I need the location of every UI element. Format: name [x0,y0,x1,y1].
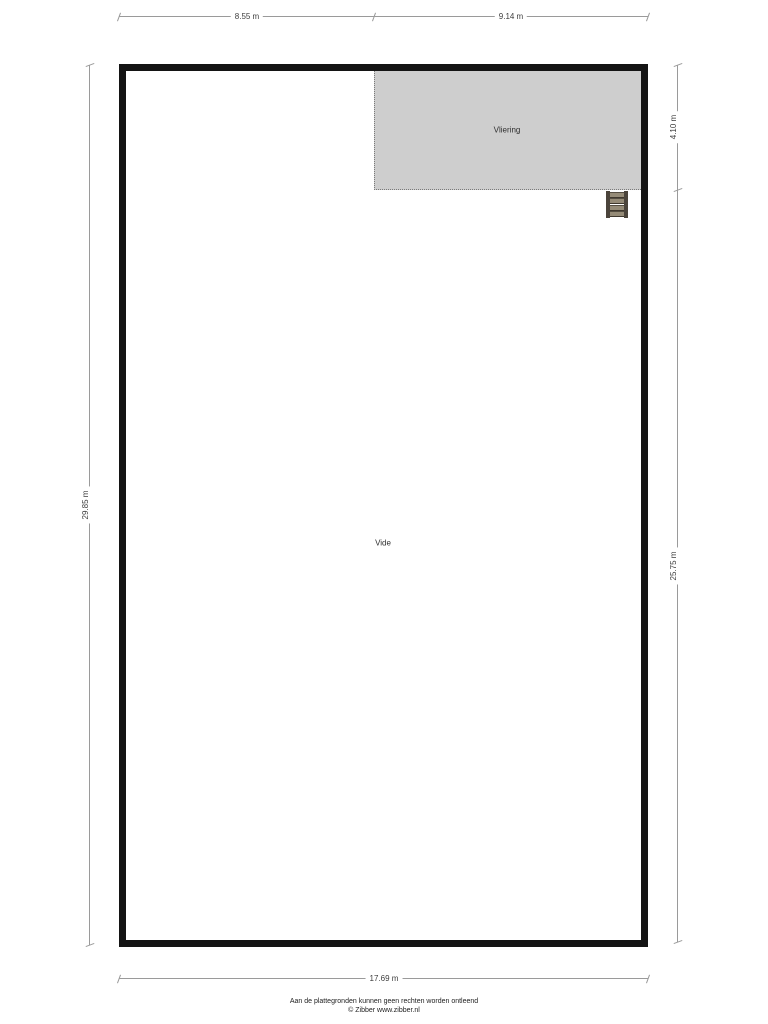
footer: Aan de plattegronden kunnen geen rechten… [0,997,768,1015]
dimension-tick [646,975,650,984]
dimension-line-top: 8.55 m 9.14 m [119,16,648,17]
dimension-label-right-top: 4.10 m [669,111,679,143]
dimension-line-bottom: 17.69 m [119,978,648,979]
dimension-tick [117,13,121,22]
ladder-rung [610,198,624,204]
dimension-tick [674,188,683,192]
floorplan-canvas: 8.55 m 9.14 m 29.85 m 4.10 m 25.75 m 17.… [0,0,768,1024]
ladder-rung [610,192,624,198]
dimension-tick [117,975,121,984]
ladder-rung [610,211,624,217]
dimension-tick [86,63,95,67]
dimension-line-left: 29.85 m [89,65,90,945]
dimension-label-top-right: 9.14 m [495,12,527,22]
dimension-line-right-top: 4.10 m [677,65,678,190]
room-label-vliering: Vliering [494,126,521,135]
dimension-tick [86,943,95,947]
dimension-label-top-left: 8.55 m [231,12,263,22]
plan-outline-walls [119,64,648,947]
dimension-label-bottom: 17.69 m [366,974,403,984]
dimension-tick [372,13,376,22]
dimension-label-right-bottom: 25.75 m [669,548,679,585]
dimension-tick [674,940,683,944]
footer-copyright: © Zibber www.zibber.nl [0,1006,768,1015]
dimension-label-left: 29.85 m [81,487,91,524]
dimension-tick [646,13,650,22]
room-label-vide: Vide [375,539,391,548]
ladder-icon [606,191,628,218]
footer-disclaimer: Aan de plattegronden kunnen geen rechten… [0,997,768,1006]
dimension-line-right-bottom: 25.75 m [677,190,678,942]
ladder-rung [610,205,624,211]
dimension-tick [674,63,683,67]
